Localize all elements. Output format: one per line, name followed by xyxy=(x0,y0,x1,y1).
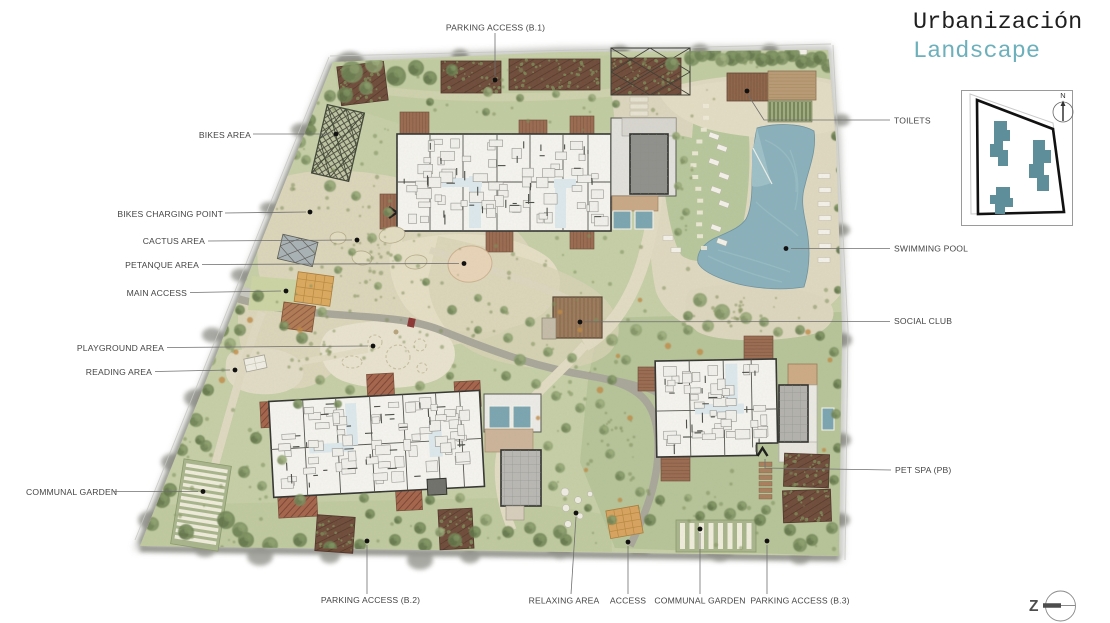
svg-text:SOCIAL CLUB: SOCIAL CLUB xyxy=(894,316,952,326)
svg-text:COMMUNAL GARDEN: COMMUNAL GARDEN xyxy=(26,487,117,497)
svg-text:PARKING ACCESS (B.3): PARKING ACCESS (B.3) xyxy=(750,596,849,606)
svg-text:PARKING ACCESS (B.2): PARKING ACCESS (B.2) xyxy=(321,595,420,605)
svg-text:PARKING ACCESS (B.1): PARKING ACCESS (B.1) xyxy=(446,23,545,33)
svg-text:COMMUNAL GARDEN: COMMUNAL GARDEN xyxy=(654,596,745,606)
svg-text:TOILETS: TOILETS xyxy=(894,116,931,126)
svg-text:SWIMMING POOL: SWIMMING POOL xyxy=(894,244,968,254)
svg-text:MAIN ACCESS: MAIN ACCESS xyxy=(127,288,188,298)
svg-text:Urbanización: Urbanización xyxy=(913,9,1082,36)
svg-text:CACTUS AREA: CACTUS AREA xyxy=(143,236,205,246)
svg-text:Z: Z xyxy=(1029,598,1039,615)
svg-text:ACCESS: ACCESS xyxy=(610,596,646,606)
svg-text:N: N xyxy=(1060,91,1065,100)
svg-text:PET SPA (PB): PET SPA (PB) xyxy=(895,465,951,475)
svg-text:PLAYGROUND AREA: PLAYGROUND AREA xyxy=(77,343,164,353)
svg-text:RELAXING AREA: RELAXING AREA xyxy=(529,596,600,606)
svg-text:PETANQUE AREA: PETANQUE AREA xyxy=(125,260,199,270)
svg-text:Landscape: Landscape xyxy=(913,38,1040,65)
svg-text:BIKES CHARGING POINT: BIKES CHARGING POINT xyxy=(117,209,223,219)
svg-text:BIKES AREA: BIKES AREA xyxy=(199,130,251,140)
svg-text:READING AREA: READING AREA xyxy=(86,367,152,377)
